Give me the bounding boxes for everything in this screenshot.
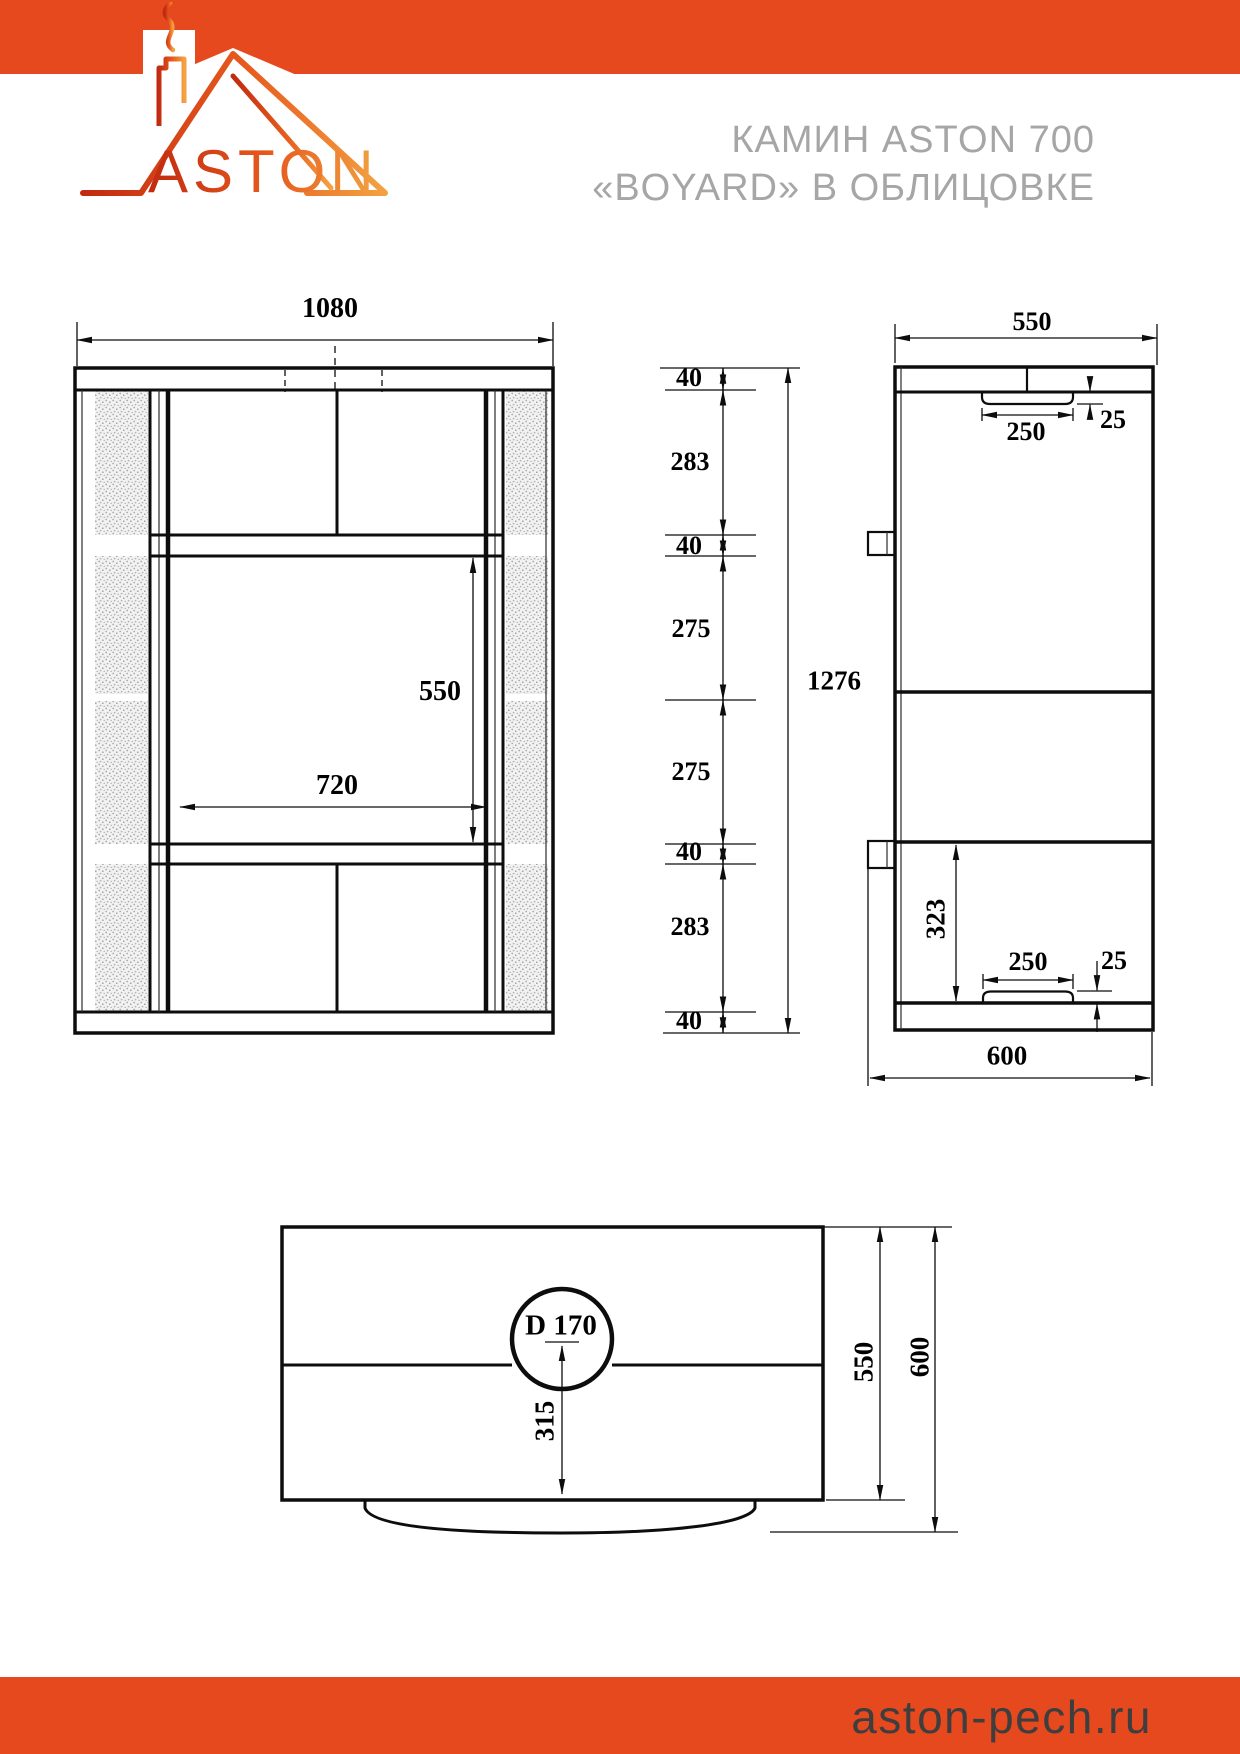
dim-label-chain-40-b: 40 [676,531,702,561]
footer-site-url: aston-pech.ru [851,1690,1152,1744]
dim-label-chain-40-d: 40 [676,1006,702,1036]
dim-label-chain-275-a: 275 [672,614,711,644]
dim-label-total-height: 1276 [807,666,861,697]
dim-label-front-width: 1080 [302,293,358,325]
dim-label-top-600: 600 [905,1337,936,1378]
dim-label-flue-top-height: 25 [1100,405,1126,435]
dim-label-flue-top-width: 250 [1007,417,1046,447]
dim-label-base-depth: 600 [987,1041,1028,1072]
dim-label-firebox-width: 720 [316,770,358,802]
dim-label-chimney-diameter: D 170 [525,1310,597,1343]
aston-logo: ASTON [55,2,405,210]
dim-label-chain-275-b: 275 [672,757,711,787]
logo-brand-text: ASTON [148,138,379,205]
dim-label-chain-283-b: 283 [671,912,710,942]
dim-label-side-323: 323 [921,899,952,940]
dim-label-chain-40-c: 40 [676,837,702,867]
dimension-labels: 1080550720402834027527540283401276550250… [0,0,1240,1754]
spec-sheet-page: ASTON КАМИН ASTON 700 «BOYARD» В ОБЛИЦОВ… [0,0,1240,1754]
dim-label-firebox-height: 550 [419,676,461,708]
dim-label-chain-283-a: 283 [671,447,710,477]
dim-label-top-315: 315 [530,1401,561,1442]
dim-label-chain-40-a: 40 [676,363,702,393]
dim-label-side-depth: 550 [1013,307,1052,337]
dim-label-flue-bottom-height: 25 [1101,946,1127,976]
dim-label-flue-bottom-width: 250 [1009,947,1048,977]
dim-label-top-550: 550 [849,1342,880,1383]
